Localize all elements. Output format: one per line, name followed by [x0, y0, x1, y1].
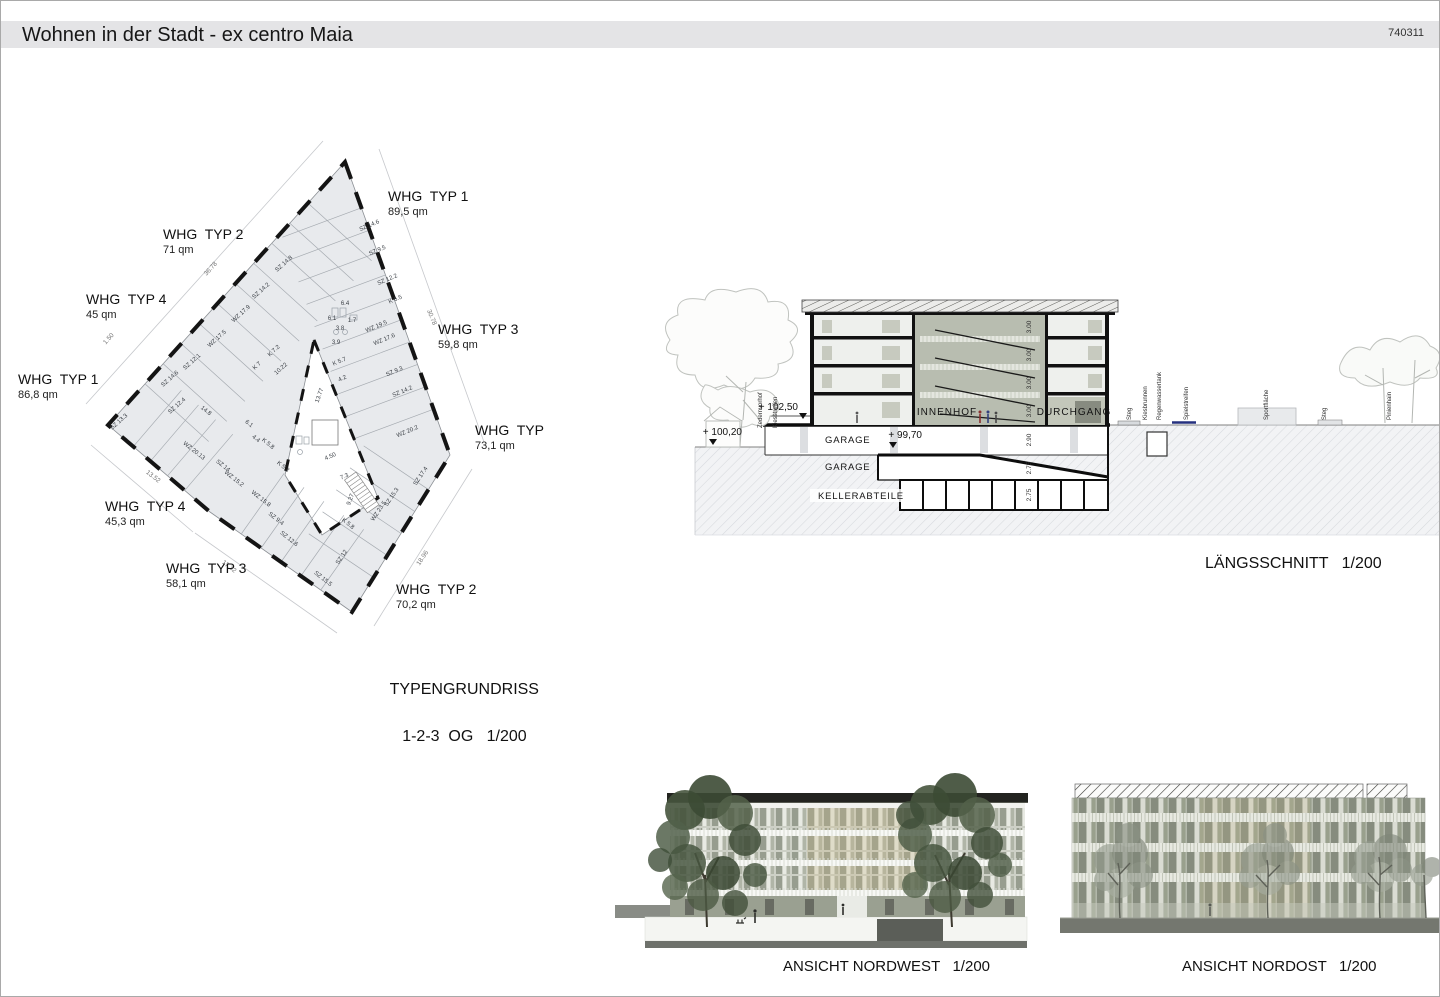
apartment-type-name: WHG TYP 4 — [105, 498, 185, 516]
pdim-label: 1.50 — [102, 332, 116, 346]
elevation-northwest-drawing — [615, 755, 1040, 965]
apartment-area: 58,1 qm — [166, 578, 246, 592]
shgt-label: 3.00 — [1026, 376, 1033, 389]
site-label: Kiesbrunnen — [1143, 386, 1149, 420]
shgt-label: 3.00 — [1026, 320, 1033, 333]
lvl-label: + 100,20 — [703, 427, 743, 438]
site-label: Spielstreifen — [1184, 387, 1190, 420]
shgt-label: 2.90 — [1026, 433, 1033, 446]
apartment-type-name: WHG TYP 3 — [438, 321, 518, 339]
apartment-area: 59,8 qm — [438, 339, 518, 353]
section-caption: LÄNGSSCHNITT 1/200 — [1205, 555, 1382, 573]
apartment-area: 70,2 qm — [396, 599, 476, 613]
section-roof — [802, 300, 1118, 312]
apartment-type-name: WHG TYP 3 — [166, 560, 246, 578]
apartment-area: 73,1 qm — [475, 440, 544, 454]
room-label: 3.9 — [332, 340, 341, 346]
apartment-type-name: WHG TYP 2 — [163, 226, 243, 244]
no-roof — [1075, 784, 1363, 798]
apartment-type-label: WHG TYP 186,8 qm — [18, 371, 98, 402]
room-label: 3.8 — [336, 326, 345, 332]
apartment-type-label: WHG TYP 189,5 qm — [388, 188, 468, 219]
apartment-area: 86,8 qm — [18, 389, 98, 403]
zone-label: INNENHOF — [917, 407, 977, 418]
page-title: Wohnen in der Stadt - ex centro Maia — [22, 24, 353, 47]
room-label: 6.1 — [328, 316, 337, 322]
plan-building-ring — [108, 162, 450, 612]
shgt-label: 2.75 — [1026, 461, 1033, 474]
apartment-type-name: WHG TYP 1 — [18, 371, 98, 389]
apartment-type-label: WHG TYP 271 qm — [163, 226, 243, 257]
shgt-label: 3.00 — [1026, 404, 1033, 417]
pdim-label: 18.96 — [415, 549, 430, 567]
room-label: 13.77 — [315, 387, 326, 404]
section-drawing: INNENHOFDURCHGANG GARAGEGARAGEKELLERABTE… — [650, 280, 1440, 590]
plan-caption: TYPENGRUNDRISS 1-2-3 OG 1/200 — [330, 655, 590, 748]
site-label: Steg — [1127, 408, 1133, 420]
apartment-type-name: WHG TYP 4 — [86, 291, 166, 309]
apartment-type-label: WHG TYP 445 qm — [86, 291, 166, 322]
plan-caption-line2: 1-2-3 OG 1/200 — [402, 728, 527, 745]
architecture-sheet: { "header": { "title": "Wohnen in der St… — [0, 0, 1440, 997]
room-label: 6.4 — [341, 301, 350, 307]
apartment-type-name: WHG TYP — [475, 422, 544, 440]
elevation-northwest-caption: ANSICHT NORDWEST 1/200 — [783, 958, 990, 975]
garage-level-1 — [763, 425, 1110, 455]
room-label: 4.50 — [324, 452, 338, 462]
apartment-area: 89,5 qm — [388, 206, 468, 220]
elevation-northeast-drawing — [1060, 775, 1440, 945]
struct-label: GARAGE — [825, 462, 870, 473]
apartment-type-name: WHG TYP 1 — [388, 188, 468, 206]
pdim-label: 36.78 — [203, 260, 219, 277]
site-label: Pinienhain — [1387, 392, 1393, 420]
site-label: Steg — [1322, 408, 1328, 420]
struct-label: GARAGE — [825, 435, 870, 446]
apartment-type-label: WHG TYP 445,3 qm — [105, 498, 185, 529]
elevation-northeast-caption: ANSICHT NORDOST 1/200 — [1182, 958, 1377, 975]
apartment-type-label: WHG TYP73,1 qm — [475, 422, 544, 453]
shgt-label: 2.75 — [1026, 488, 1033, 501]
site-label: Sportfläche — [1264, 389, 1270, 420]
apartment-area: 71 qm — [163, 244, 243, 258]
room-label: 1.7 — [348, 318, 357, 324]
lvl-label: + 99,70 — [888, 430, 922, 441]
zone-label: DURCHGANG — [1037, 407, 1112, 418]
apartment-area: 45,3 qm — [105, 516, 185, 530]
site-label: Zedernvorhof — [758, 392, 764, 428]
apartment-type-name: WHG TYP 2 — [396, 581, 476, 599]
plan-caption-line1: TYPENGRUNDRISS — [390, 681, 539, 698]
pdim-label: 13.52 — [144, 469, 161, 485]
sheet-number: 740311 — [1388, 27, 1424, 39]
pdim-label: 30.78 — [425, 309, 438, 327]
apartment-type-label: WHG TYP 358,1 qm — [166, 560, 246, 591]
apartment-type-label: WHG TYP 270,2 qm — [396, 581, 476, 612]
struct-label: KELLERABTEILE — [818, 491, 904, 502]
cellar-compartments — [900, 480, 1108, 510]
shgt-label: 3.00 — [1026, 348, 1033, 361]
site-label: Regenwassertank — [1157, 371, 1163, 420]
apartment-area: 45 qm — [86, 309, 166, 323]
site-label: Kiesstreifen — [773, 397, 779, 428]
floor-plan-drawing: SZ 14.6SZ 9.5SZ 12.2K 6.5WZ 19.5WZ 17.6K… — [50, 140, 580, 680]
plan-courtyard-core — [312, 420, 338, 445]
apartment-type-label: WHG TYP 359,8 qm — [438, 321, 518, 352]
